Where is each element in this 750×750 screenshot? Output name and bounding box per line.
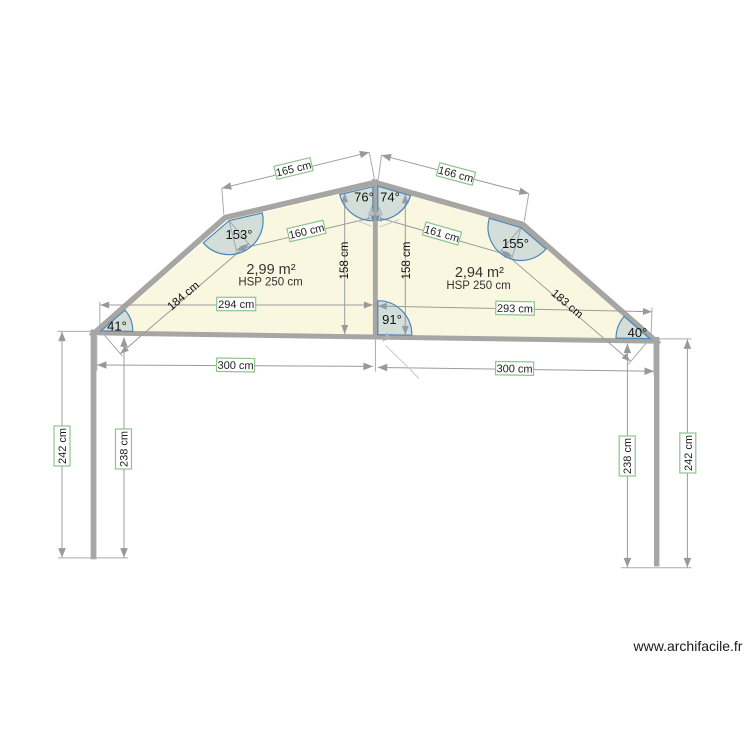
svg-text:41°: 41° [107,319,127,334]
svg-text:74°: 74° [380,190,400,205]
svg-text:40°: 40° [628,325,648,340]
svg-text:155°: 155° [502,236,529,251]
svg-text:293 cm: 293 cm [497,303,533,316]
svg-text:242 cm: 242 cm [683,435,695,471]
svg-text:242 cm: 242 cm [57,428,69,464]
svg-text:238 cm: 238 cm [622,438,634,474]
svg-text:238 cm: 238 cm [119,431,131,467]
svg-text:2,99 m²: 2,99 m² [246,262,295,278]
svg-text:294 cm: 294 cm [218,299,254,311]
svg-text:158 cm: 158 cm [339,242,351,280]
svg-text:300 cm: 300 cm [496,363,532,376]
svg-text:HSP 250 cm: HSP 250 cm [238,277,302,289]
svg-text:2,94 m²: 2,94 m² [455,265,504,281]
svg-text:153°: 153° [226,227,253,242]
svg-text:300 cm: 300 cm [217,360,253,373]
svg-text:www.archifacile.fr: www.archifacile.fr [633,638,743,654]
svg-text:158 cm: 158 cm [401,242,413,280]
svg-text:76°: 76° [354,190,374,205]
svg-text:HSP 250 cm: HSP 250 cm [446,280,510,292]
svg-text:91°: 91° [382,312,402,327]
